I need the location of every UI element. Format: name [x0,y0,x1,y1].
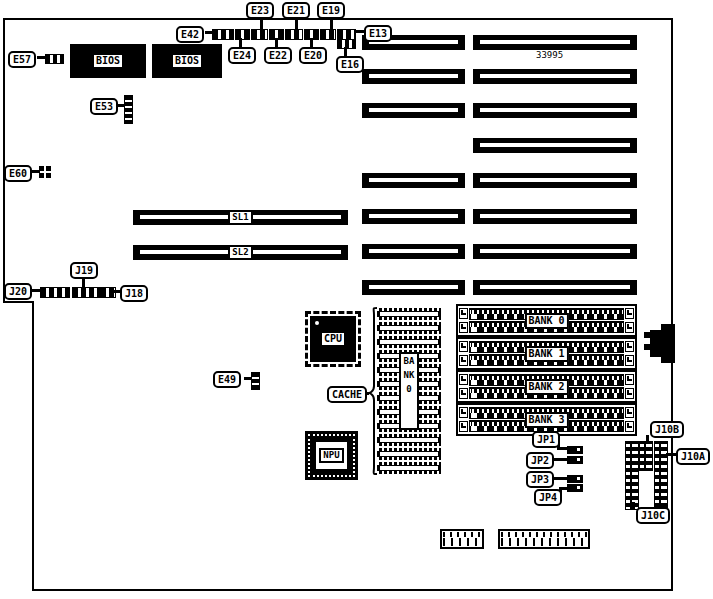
callout-j20: J20 [4,283,32,300]
callout-e57: E57 [8,51,36,68]
callout-e13: E13 [364,25,392,42]
callout-jp4: JP4 [534,489,562,506]
callout-e21: E21 [282,2,310,19]
npu-label: NPU [319,448,343,463]
callout-e23: E23 [246,2,274,19]
bank-2-label: BANK 2 [524,379,568,395]
callout-e22: E22 [264,47,292,64]
callout-tail [205,31,213,34]
keyboard-connector-body [650,330,661,357]
callout-j10c: J10C [636,507,670,524]
bank-0-label: BANK 0 [524,313,568,329]
callout-e42: E42 [176,26,204,43]
callout-tail [557,447,569,450]
callout-tail [31,170,40,173]
callout-tail [31,289,41,292]
callout-e49: E49 [213,371,241,388]
callout-tail [37,56,46,59]
callout-tail [553,458,568,461]
callout-e19: E19 [317,2,345,19]
callout-e60: E60 [4,165,32,182]
bios-1-label: BIOS [92,53,124,69]
callout-jp3: JP3 [526,471,554,488]
cpu-label: CPU [320,331,346,347]
callout-jp2: JP2 [526,452,554,469]
callout-jp1: JP1 [532,431,560,448]
callout-e20: E20 [299,47,327,64]
callout-e16: E16 [336,56,364,73]
keyboard-connector [661,324,675,363]
callout-e53: E53 [90,98,118,115]
board-outline [0,0,713,599]
callout-j18: J18 [120,285,148,302]
bank-3-label: BANK 3 [524,412,568,428]
callout-e24: E24 [228,47,256,64]
callout-cache: CACHE [327,386,367,403]
dip-bank-vertical-label: BANK0 [399,352,419,430]
bios-2-label: BIOS [171,53,203,69]
callout-j10b: J10B [650,421,684,438]
motherboard-diagram: 33995 BIOS BIOS SL1 SL2 CPU NPU BANK0 [0,0,713,599]
callout-tail [632,502,635,509]
cache-brace [366,306,378,476]
callout-tail [646,435,649,443]
bank-1-label: BANK 1 [524,346,568,362]
sl1-label: SL1 [228,210,252,225]
callout-tail [244,377,252,380]
callout-tail [553,477,568,480]
callout-j19: J19 [70,262,98,279]
sl2-label: SL2 [228,245,252,260]
callout-j10a: J10A [676,448,710,465]
callout-tail [117,104,125,107]
